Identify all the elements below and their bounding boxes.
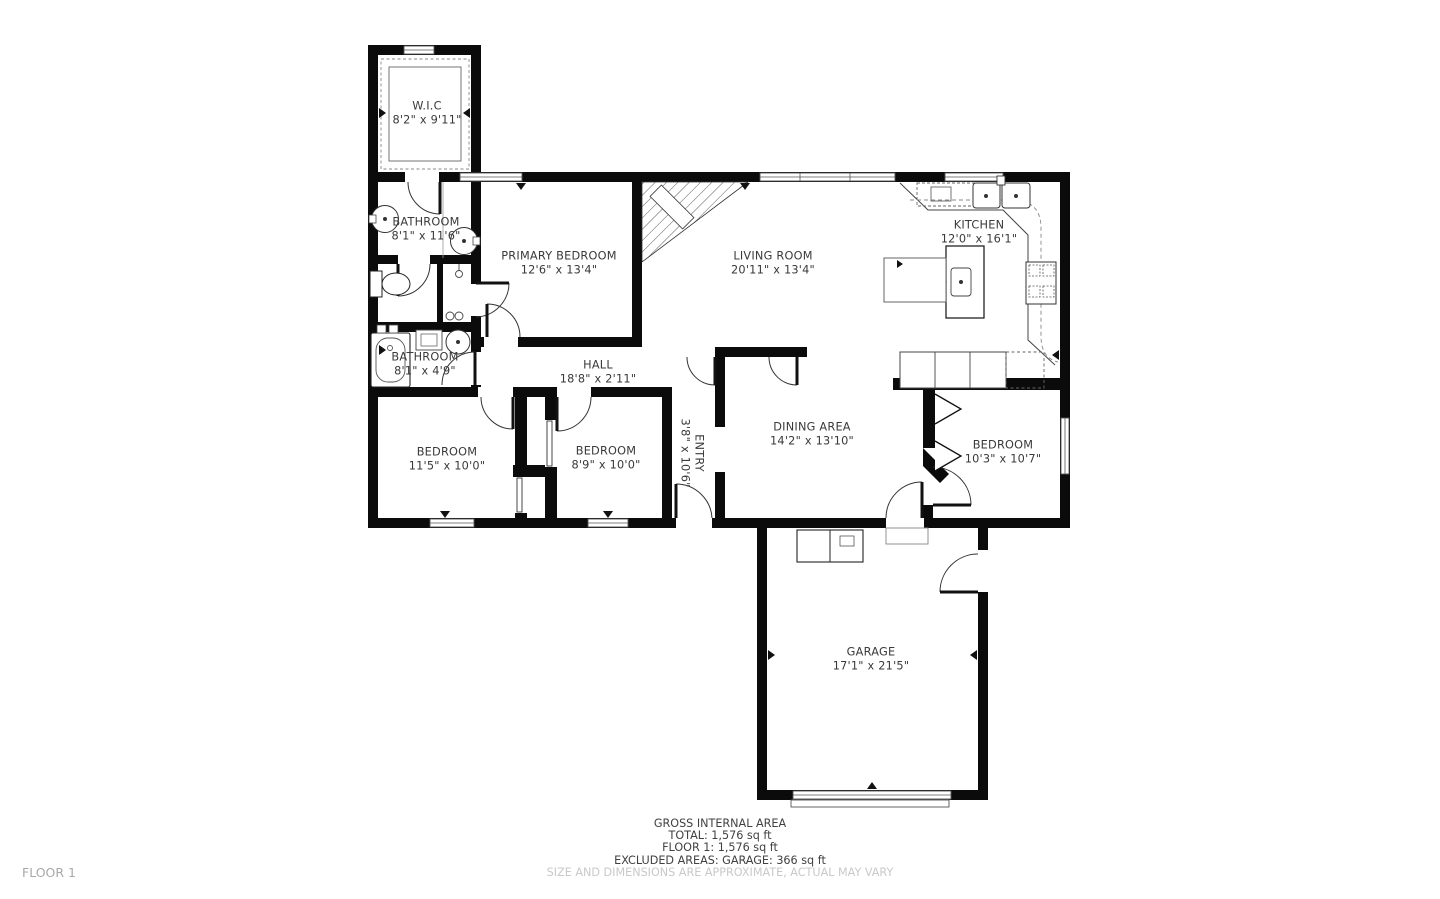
floor-number-label: FLOOR 1 [22, 865, 76, 880]
room-dims: 10'3" x 10'7" [965, 452, 1042, 466]
room-label-bathroom-1: BATHROOM 8'1" x 11'6" [391, 216, 460, 243]
summary-disclaimer: SIZE AND DIMENSIONS ARE APPROXIMATE, ACT… [547, 867, 894, 879]
room-name: GARAGE [833, 646, 910, 660]
room-dims: 17'1" x 21'5" [833, 659, 910, 673]
room-dims: 3'8" x 10'6" [679, 418, 693, 487]
room-name: PRIMARY BEDROOM [501, 250, 616, 264]
room-dims: 20'11" x 13'4" [731, 263, 815, 277]
room-label-bedroom-3: BEDROOM 10'3" x 10'7" [965, 439, 1042, 466]
room-name: ENTRY [692, 418, 706, 487]
room-dims: 18'8" x 2'11" [560, 372, 637, 386]
windows [404, 46, 1069, 807]
room-dims: 8'1" x 11'6" [391, 229, 460, 243]
room-name: KITCHEN [941, 219, 1018, 233]
room-label-primary-bedroom: PRIMARY BEDROOM 12'6" x 13'4" [501, 250, 616, 277]
room-name: BEDROOM [965, 439, 1042, 453]
room-label-bedroom-1: BEDROOM 11'5" x 10'0" [409, 446, 486, 473]
room-dims: 8'1" x 4'9" [391, 364, 458, 378]
area-summary: GROSS INTERNAL AREA TOTAL: 1,576 sq ft F… [547, 818, 894, 879]
room-label-entry: ENTRY 3'8" x 10'6" [679, 418, 706, 487]
room-name: BEDROOM [409, 446, 486, 460]
floor-plan-drawing [0, 0, 1440, 899]
room-name: HALL [560, 359, 637, 373]
room-label-living-room: LIVING ROOM 20'11" x 13'4" [731, 250, 815, 277]
floor-plan-page: W.I.C 8'2" x 9'11" BATHROOM 8'1" x 11'6"… [0, 0, 1440, 899]
room-label-bathroom-2: BATHROOM 8'1" x 4'9" [391, 351, 458, 378]
room-dims: 8'2" x 9'11" [392, 113, 461, 127]
room-dims: 12'0" x 16'1" [941, 232, 1018, 246]
room-label-bedroom-2: BEDROOM 8'9" x 10'0" [571, 445, 640, 472]
garage-fixtures [797, 528, 928, 562]
room-dims: 12'6" x 13'4" [501, 263, 616, 277]
kitchen-fixtures [884, 176, 1058, 388]
room-label-garage: GARAGE 17'1" x 21'5" [833, 646, 910, 673]
summary-floor1: FLOOR 1: 1,576 sq ft [547, 842, 894, 854]
room-name: DINING AREA [770, 421, 854, 435]
room-dims: 8'9" x 10'0" [571, 458, 640, 472]
walls [368, 45, 1070, 800]
summary-excluded: EXCLUDED AREAS: GARAGE: 366 sq ft [547, 855, 894, 867]
room-label-dining-area: DINING AREA 14'2" x 13'10" [770, 421, 854, 448]
room-label-kitchen: KITCHEN 12'0" x 16'1" [941, 219, 1018, 246]
room-dims: 11'5" x 10'0" [409, 459, 486, 473]
room-name: BATHROOM [391, 216, 460, 230]
room-name: LIVING ROOM [731, 250, 815, 264]
room-name: BATHROOM [391, 351, 458, 365]
room-label-wic: W.I.C 8'2" x 9'11" [392, 100, 461, 127]
room-label-hall: HALL 18'8" x 2'11" [560, 359, 637, 386]
room-name: W.I.C [392, 100, 461, 114]
room-dims: 14'2" x 13'10" [770, 434, 854, 448]
room-name: BEDROOM [571, 445, 640, 459]
